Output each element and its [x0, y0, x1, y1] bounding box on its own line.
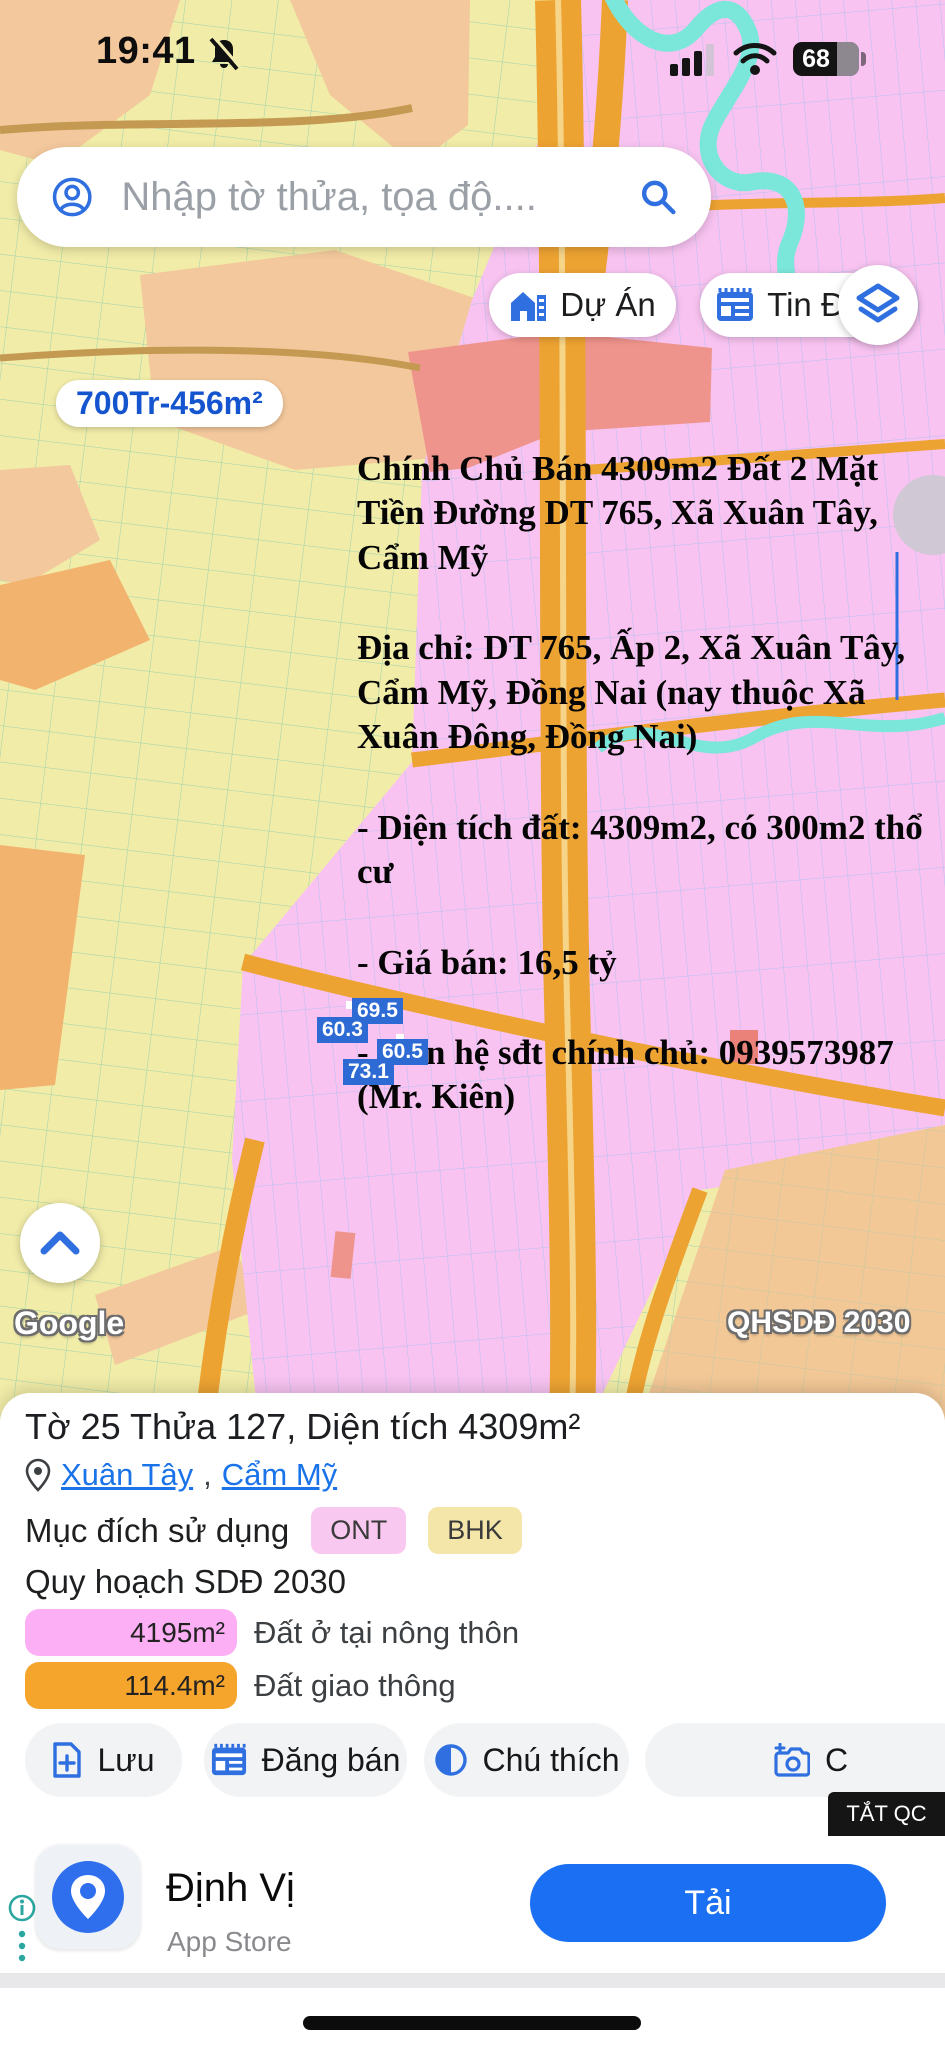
legend-label: Đất giao thông — [254, 1668, 456, 1704]
usage-row: Mục đích sử dụng ONT BHK — [25, 1507, 522, 1554]
ad-app-icon[interactable] — [36, 1845, 140, 1949]
legend-label: Đất ở tại nông thôn — [254, 1615, 519, 1651]
notifications-silenced-icon — [206, 36, 242, 72]
parcel-label[interactable]: 60.3 — [317, 1017, 368, 1043]
ad-banner[interactable]: Định Vị App Store Tải — [0, 1840, 945, 1973]
capture-button[interactable]: C — [645, 1723, 945, 1797]
camera-plus-icon — [772, 1743, 810, 1777]
search-input[interactable] — [119, 174, 638, 221]
layers-icon — [855, 282, 901, 328]
legend-row-residential: 4195m² Đất ở tại nông thôn — [25, 1609, 519, 1656]
listing-contact: - Liên hệ sđt chính chủ: 0939573987 (Mr.… — [357, 1031, 945, 1120]
location-pin-icon — [25, 1458, 51, 1492]
planning-title: Quy hoạch SDĐ 2030 — [25, 1563, 346, 1601]
parcel-label[interactable]: 73.1 — [343, 1059, 394, 1085]
layers-button[interactable] — [838, 265, 918, 345]
listing-address: Địa chỉ: DT 765, Ấp 2, Xã Xuân Tây, Cẩm … — [357, 626, 945, 759]
battery-percent: 68 — [793, 42, 839, 76]
search-bar — [17, 147, 711, 247]
location-comma: , — [203, 1457, 212, 1493]
usage-tag-ont: ONT — [311, 1507, 406, 1554]
save-file-plus-icon — [52, 1742, 82, 1778]
chevron-up-icon — [38, 1229, 82, 1257]
battery-empty-part — [837, 42, 859, 76]
legend-toggle-label: Chú thích — [483, 1742, 620, 1779]
ad-app-name: Định Vị — [166, 1866, 295, 1911]
post-calendar-icon — [211, 1743, 247, 1777]
project-house-icon — [509, 287, 547, 323]
plan-watermark: QHSDĐ 2030 — [727, 1306, 910, 1340]
legend-swatch-orange: 114.4m² — [25, 1662, 237, 1709]
ad-info-icon[interactable] — [7, 1894, 37, 1974]
location-row: Xuân Tây , Cẩm Mỹ — [25, 1457, 337, 1493]
banner-divider — [0, 1973, 945, 1988]
post-listing-button[interactable]: Đăng bán — [204, 1723, 407, 1797]
listing-ad-overlay: Chính Chủ Bán 4309m2 Đất 2 Mặt Tiền Đườn… — [357, 447, 945, 1166]
parcel-title: Tờ 25 Thửa 127, Diện tích 4309m² — [25, 1406, 580, 1448]
legend-swatch-pink: 4195m² — [25, 1609, 237, 1656]
save-label: Lưu — [97, 1742, 154, 1779]
ad-store-label: App Store — [167, 1926, 292, 1958]
listing-headline: Chính Chủ Bán 4309m2 Đất 2 Mặt Tiền Đườn… — [357, 447, 945, 580]
ad-download-button[interactable]: Tải — [530, 1864, 886, 1942]
usage-tag-bhk: BHK — [428, 1507, 522, 1554]
usage-label: Mục đích sử dụng — [25, 1512, 289, 1550]
location-link-ward[interactable]: Xuân Tây — [61, 1457, 193, 1493]
capture-label: C — [825, 1742, 848, 1779]
du-an-label: Dự Án — [560, 286, 655, 324]
status-time: 19:41 — [96, 30, 196, 73]
collapse-panel-button[interactable] — [20, 1203, 100, 1283]
contrast-icon — [434, 1743, 468, 1777]
search-icon[interactable] — [638, 174, 679, 220]
price-marker[interactable]: 700Tr-456m² — [56, 380, 283, 427]
account-icon[interactable] — [51, 173, 93, 221]
app-screen: 19:41 68 — [0, 0, 945, 2048]
google-logo: Google — [14, 1305, 124, 1342]
listing-area: - Diện tích đất: 4309m2, có 300m2 thổ cư — [357, 806, 945, 895]
battery-nub — [861, 52, 866, 66]
legend-toggle-button[interactable]: Chú thích — [424, 1723, 629, 1797]
du-an-button[interactable]: Dự Án — [489, 273, 676, 337]
home-indicator[interactable] — [303, 2016, 641, 2030]
listing-price: - Giá bán: 16,5 tỷ — [357, 941, 945, 985]
save-button[interactable]: Lưu — [25, 1723, 182, 1797]
dismiss-ad-button[interactable]: TẮT QC — [828, 1792, 945, 1836]
listings-icon — [716, 288, 754, 322]
app-location-pin-icon — [50, 1859, 126, 1935]
cellular-signal-icon — [670, 44, 722, 76]
post-listing-label: Đăng bán — [262, 1742, 401, 1779]
battery-indicator: 68 — [793, 42, 859, 76]
legend-row-road: 114.4m² Đất giao thông — [25, 1662, 456, 1709]
parcel-info-panel: Tờ 25 Thửa 127, Diện tích 4309m² Xuân Tâ… — [0, 1393, 945, 1840]
wifi-icon — [732, 42, 778, 76]
location-link-district[interactable]: Cẩm Mỹ — [222, 1457, 337, 1493]
